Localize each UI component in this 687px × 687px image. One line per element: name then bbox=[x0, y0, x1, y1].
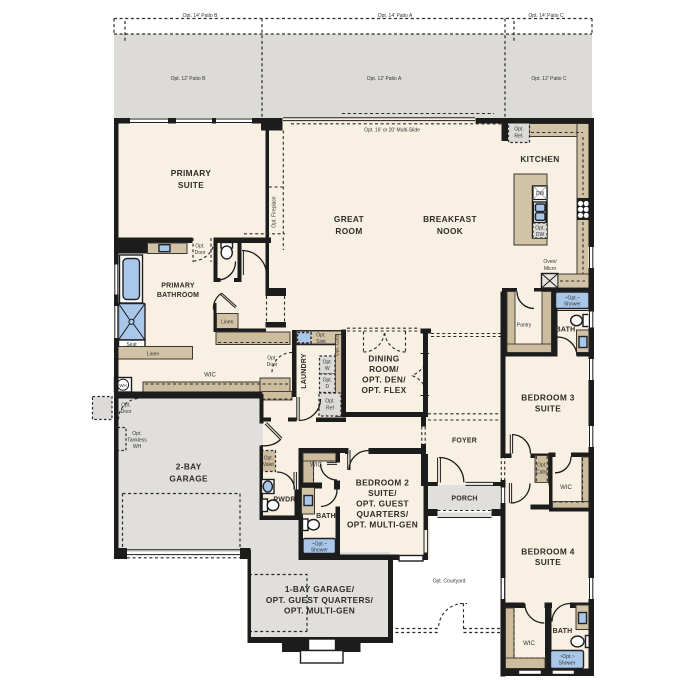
svg-text:Opt.: Opt. bbox=[132, 431, 141, 437]
svg-text:DINING: DINING bbox=[368, 354, 399, 364]
svg-text:Opt.: Opt. bbox=[267, 356, 276, 362]
svg-text:OPT. MULTI-GEN: OPT. MULTI-GEN bbox=[347, 520, 418, 530]
svg-text:Opt. 14' Patio C: Opt. 14' Patio C bbox=[528, 13, 564, 19]
svg-text:1-BAY GARAGE/: 1-BAY GARAGE/ bbox=[285, 584, 355, 594]
svg-text:Opt.: Opt. bbox=[325, 399, 334, 405]
svg-text:Micro: Micro bbox=[544, 266, 556, 272]
svg-text:~Opt.~: ~Opt.~ bbox=[559, 654, 574, 660]
svg-text:OPT. GUEST QUARTERS/: OPT. GUEST QUARTERS/ bbox=[266, 595, 374, 605]
svg-text:SUITE: SUITE bbox=[178, 180, 204, 190]
svg-text:DW: DW bbox=[536, 232, 545, 238]
svg-text:SUITE: SUITE bbox=[535, 404, 561, 414]
svg-text:SUITE/: SUITE/ bbox=[368, 488, 397, 498]
svg-text:2-BAY: 2-BAY bbox=[176, 462, 202, 472]
svg-text:Opt. 16' or 20' Multi-Slide: Opt. 16' or 20' Multi-Slide bbox=[364, 128, 420, 134]
svg-text:WIC: WIC bbox=[523, 641, 535, 647]
svg-text:BATHROOM: BATHROOM bbox=[157, 292, 199, 299]
svg-text:GARAGE: GARAGE bbox=[169, 474, 208, 484]
svg-text:BEDROOM 3: BEDROOM 3 bbox=[521, 393, 574, 403]
svg-text:ROOM: ROOM bbox=[335, 226, 362, 236]
svg-text:Linen: Linen bbox=[221, 320, 233, 326]
svg-text:Valet: Valet bbox=[263, 462, 275, 468]
svg-text:Opt. 12' Patio A: Opt. 12' Patio A bbox=[367, 76, 402, 82]
svg-text:Ref: Ref bbox=[326, 406, 334, 412]
svg-text:SUITE: SUITE bbox=[535, 557, 561, 567]
svg-text:BREAKFAST: BREAKFAST bbox=[423, 214, 477, 224]
svg-text:BATH: BATH bbox=[316, 513, 336, 520]
svg-text:BEDROOM 2: BEDROOM 2 bbox=[356, 478, 409, 488]
svg-text:Opt. 12' Patio B: Opt. 12' Patio B bbox=[171, 76, 207, 82]
svg-text:GREAT: GREAT bbox=[334, 214, 364, 224]
svg-text:Sink: Sink bbox=[316, 339, 326, 345]
svg-text:Shower: Shower bbox=[559, 661, 576, 667]
svg-text:BATH: BATH bbox=[553, 628, 573, 635]
svg-text:Opt. 14' Patio B: Opt. 14' Patio B bbox=[183, 13, 219, 19]
svg-text:OPT. FLEX: OPT. FLEX bbox=[361, 385, 406, 395]
svg-text:WIC: WIC bbox=[204, 373, 216, 379]
svg-text:Tankless: Tankless bbox=[127, 438, 147, 444]
svg-text:Opt. Cabs: Opt. Cabs bbox=[335, 333, 341, 356]
svg-text:Opt.: Opt. bbox=[535, 226, 544, 232]
svg-text:Cabs: Cabs bbox=[536, 470, 548, 476]
svg-text:DW: DW bbox=[536, 191, 545, 197]
svg-text:ROOM/: ROOM/ bbox=[369, 364, 399, 374]
svg-text:Oven/: Oven/ bbox=[543, 259, 557, 265]
svg-text:Linen: Linen bbox=[147, 352, 159, 358]
svg-text:Opt.: Opt. bbox=[323, 360, 332, 366]
svg-text:KITCHEN: KITCHEN bbox=[520, 154, 559, 164]
svg-text:Opt.: Opt. bbox=[514, 127, 523, 133]
svg-text:NOOK: NOOK bbox=[437, 226, 463, 236]
svg-text:Shower: Shower bbox=[311, 548, 328, 554]
svg-text:Opt. Fireplace: Opt. Fireplace bbox=[272, 196, 278, 228]
svg-text:BATH: BATH bbox=[556, 327, 576, 334]
svg-text:Opt.: Opt. bbox=[121, 403, 130, 409]
svg-text:QUARTERS/: QUARTERS/ bbox=[356, 509, 408, 519]
svg-text:PRIMARY: PRIMARY bbox=[161, 283, 195, 290]
svg-text:Pantry: Pantry bbox=[517, 323, 532, 329]
svg-text:Opt.: Opt. bbox=[195, 244, 204, 250]
svg-text:Opt.: Opt. bbox=[537, 463, 546, 469]
svg-text:Opt. Courtyard: Opt. Courtyard bbox=[433, 579, 466, 585]
svg-text:Door: Door bbox=[267, 362, 278, 368]
svg-text:OPT. DEN/: OPT. DEN/ bbox=[362, 375, 406, 385]
svg-text:Door: Door bbox=[121, 409, 132, 415]
svg-text:BEDROOM 4: BEDROOM 4 bbox=[521, 547, 574, 557]
svg-text:Shower: Shower bbox=[564, 302, 581, 308]
svg-text:Opt.: Opt. bbox=[264, 456, 273, 462]
svg-text:OPT. GUEST: OPT. GUEST bbox=[356, 499, 409, 509]
svg-text:WIC: WIC bbox=[560, 485, 572, 491]
svg-text:Opt. 12' Patio C: Opt. 12' Patio C bbox=[531, 76, 567, 82]
svg-text:Opt. 14' Patio A: Opt. 14' Patio A bbox=[378, 13, 413, 19]
svg-text:LAUNDRY: LAUNDRY bbox=[301, 353, 308, 388]
svg-text:WH: WH bbox=[119, 383, 126, 388]
svg-text:PRIMARY: PRIMARY bbox=[171, 168, 212, 178]
svg-text:OPT. MULTI-GEN: OPT. MULTI-GEN bbox=[284, 606, 355, 616]
svg-text:PORCH: PORCH bbox=[451, 496, 477, 503]
svg-text:W: W bbox=[325, 366, 330, 372]
svg-text:WH: WH bbox=[133, 444, 142, 450]
svg-text:D: D bbox=[325, 384, 329, 390]
svg-text:FOYER: FOYER bbox=[452, 438, 477, 445]
svg-text:Opt.: Opt. bbox=[323, 378, 332, 384]
svg-text:Door: Door bbox=[195, 250, 206, 256]
svg-text:Ref.: Ref. bbox=[514, 134, 523, 140]
svg-text:Opt.: Opt. bbox=[316, 333, 325, 339]
